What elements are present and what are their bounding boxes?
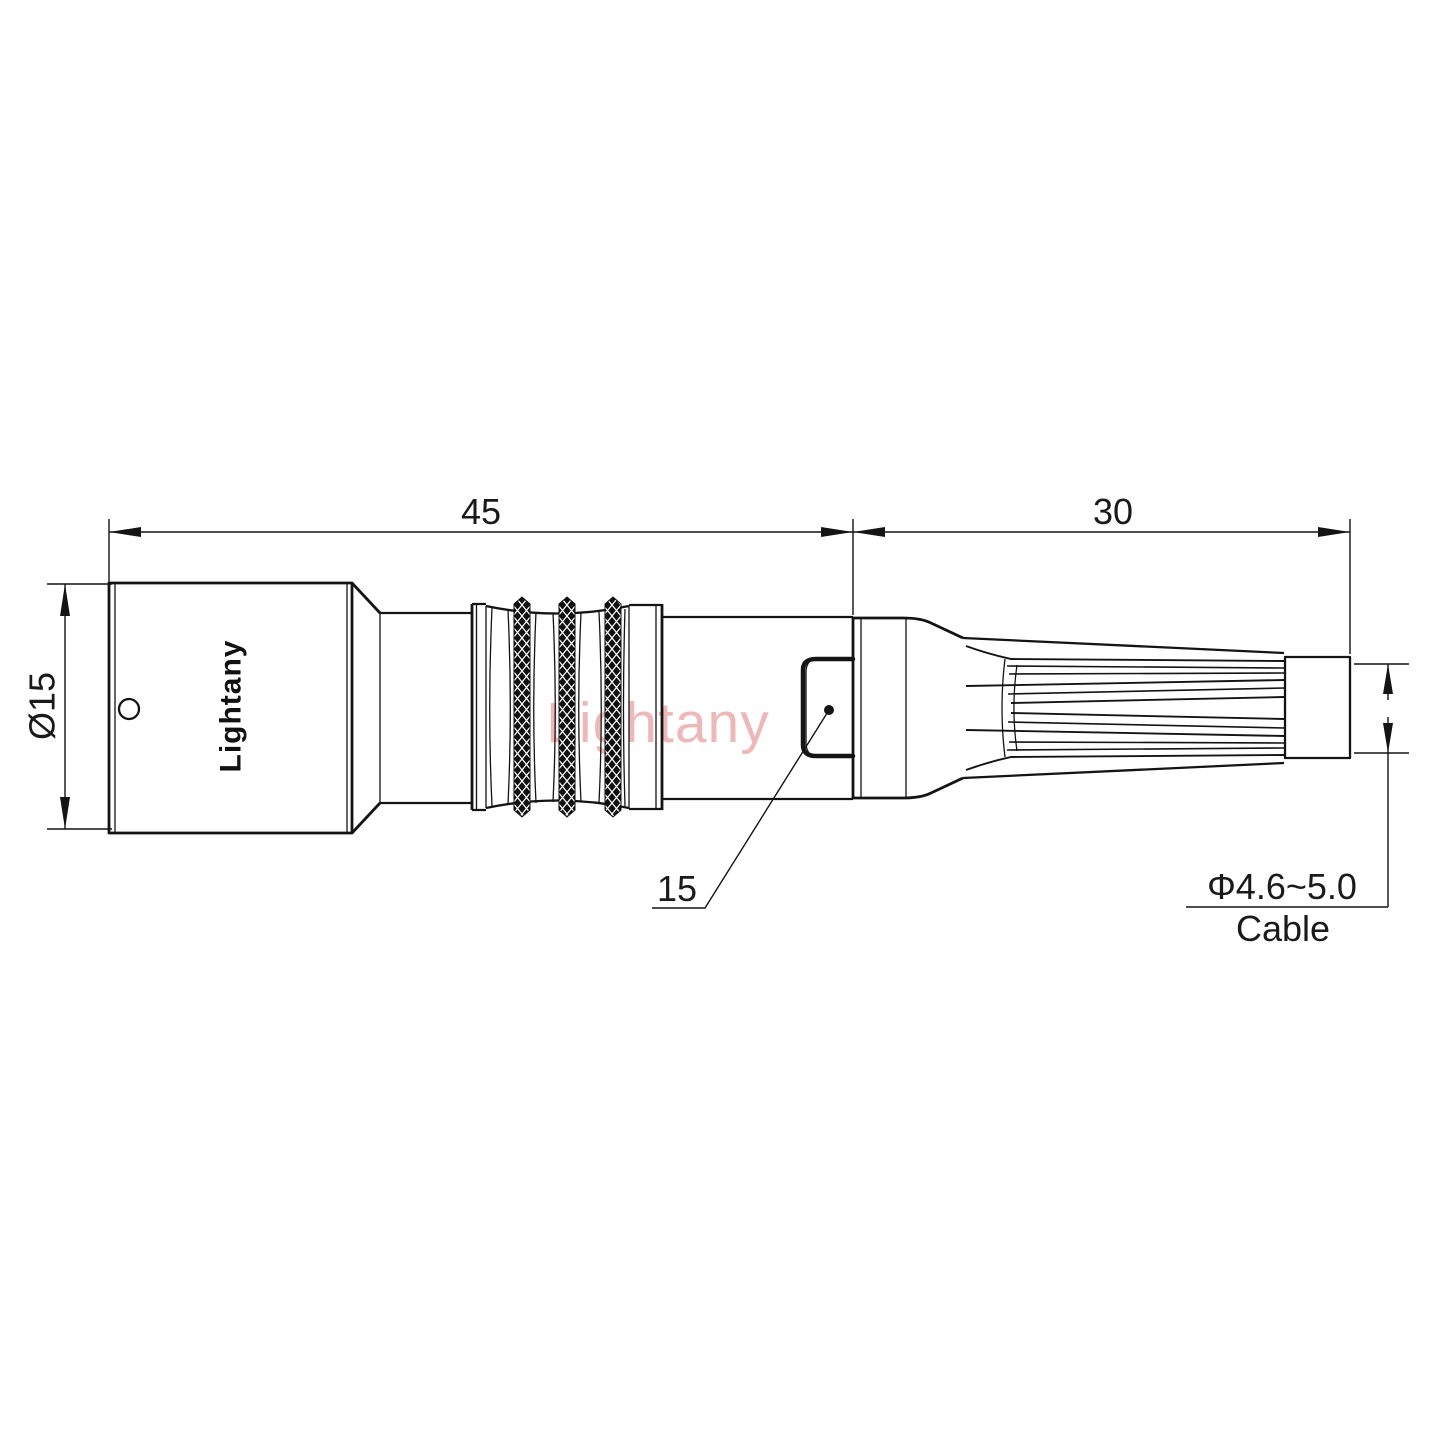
boot-slot-root	[1002, 659, 1005, 757]
dimension-cable-diameter: Φ4.6~5.0 Cable	[1186, 664, 1409, 949]
drawing-canvas: Lightany Lightany	[0, 0, 1440, 1440]
watermark-text: Lightany	[546, 691, 770, 755]
cable-sleeve-outline	[1285, 657, 1350, 758]
dimension-shell-diameter: Ø15	[22, 584, 113, 829]
arrowhead-right	[821, 527, 853, 537]
boot-fin-line	[1008, 722, 1284, 728]
cable-diameter-value: Φ4.6~5.0	[1207, 866, 1357, 907]
shell-taper	[352, 583, 380, 833]
boot-bottom-outline	[963, 763, 1284, 778]
arrowhead-up	[1383, 664, 1393, 694]
knurl-band-2	[559, 597, 575, 817]
collar-top	[853, 618, 963, 638]
latch-window	[803, 659, 853, 756]
dimension-value-45: 45	[461, 491, 501, 532]
strain-relief-boot	[963, 638, 1284, 778]
boot-fin-line	[966, 755, 1284, 770]
boot-fin-line	[1009, 673, 1284, 674]
barrel-front	[380, 613, 472, 803]
knurl-band-3	[605, 597, 621, 817]
taper-top	[352, 583, 380, 613]
boot-fin-line	[1007, 748, 1284, 750]
knurl-band-1	[514, 597, 530, 817]
dimension-value-diameter-15: Ø15	[22, 672, 63, 740]
dimension-overall-length: 45	[109, 491, 853, 615]
grip-panel-line	[534, 612, 536, 803]
collar	[853, 618, 963, 798]
boot-fin-line	[966, 646, 1284, 661]
boot-fin-line	[966, 730, 1284, 736]
dimension-strain-relief-length: 30	[853, 491, 1350, 654]
arrowhead-bottom	[60, 797, 70, 829]
boot-fin-line	[966, 680, 1284, 686]
boot-slot-root	[1014, 665, 1017, 751]
boot-fin-line	[1009, 742, 1284, 743]
arrowhead-right	[1318, 527, 1350, 537]
arrowhead-left	[853, 527, 885, 537]
grip-panel-line	[508, 610, 510, 804]
boot-fin-line	[1011, 697, 1284, 703]
boot-top-outline	[963, 638, 1284, 653]
arrowhead-top	[60, 584, 70, 616]
shell-pin-hole	[119, 699, 139, 719]
body-brand-label: Lightany	[215, 640, 248, 773]
cable-label: Cable	[1236, 908, 1330, 949]
taper-bottom	[352, 803, 380, 833]
cable-sleeve	[1285, 657, 1350, 758]
arrowhead-left	[109, 527, 141, 537]
boot-fin-line	[1007, 666, 1284, 668]
connector-technical-drawing: Lightany Lightany	[0, 0, 1440, 1440]
grip-left-flange-caps	[472, 604, 486, 810]
leader-value-15: 15	[657, 868, 697, 909]
arrowhead-down	[1383, 723, 1393, 753]
grip-panel-line	[490, 608, 492, 806]
boot-fin-line	[1011, 713, 1284, 719]
front-shell: Lightany	[109, 583, 352, 833]
collar-bottom	[853, 778, 963, 798]
boot-fin-line	[1008, 688, 1284, 694]
dimension-value-30: 30	[1093, 491, 1133, 532]
